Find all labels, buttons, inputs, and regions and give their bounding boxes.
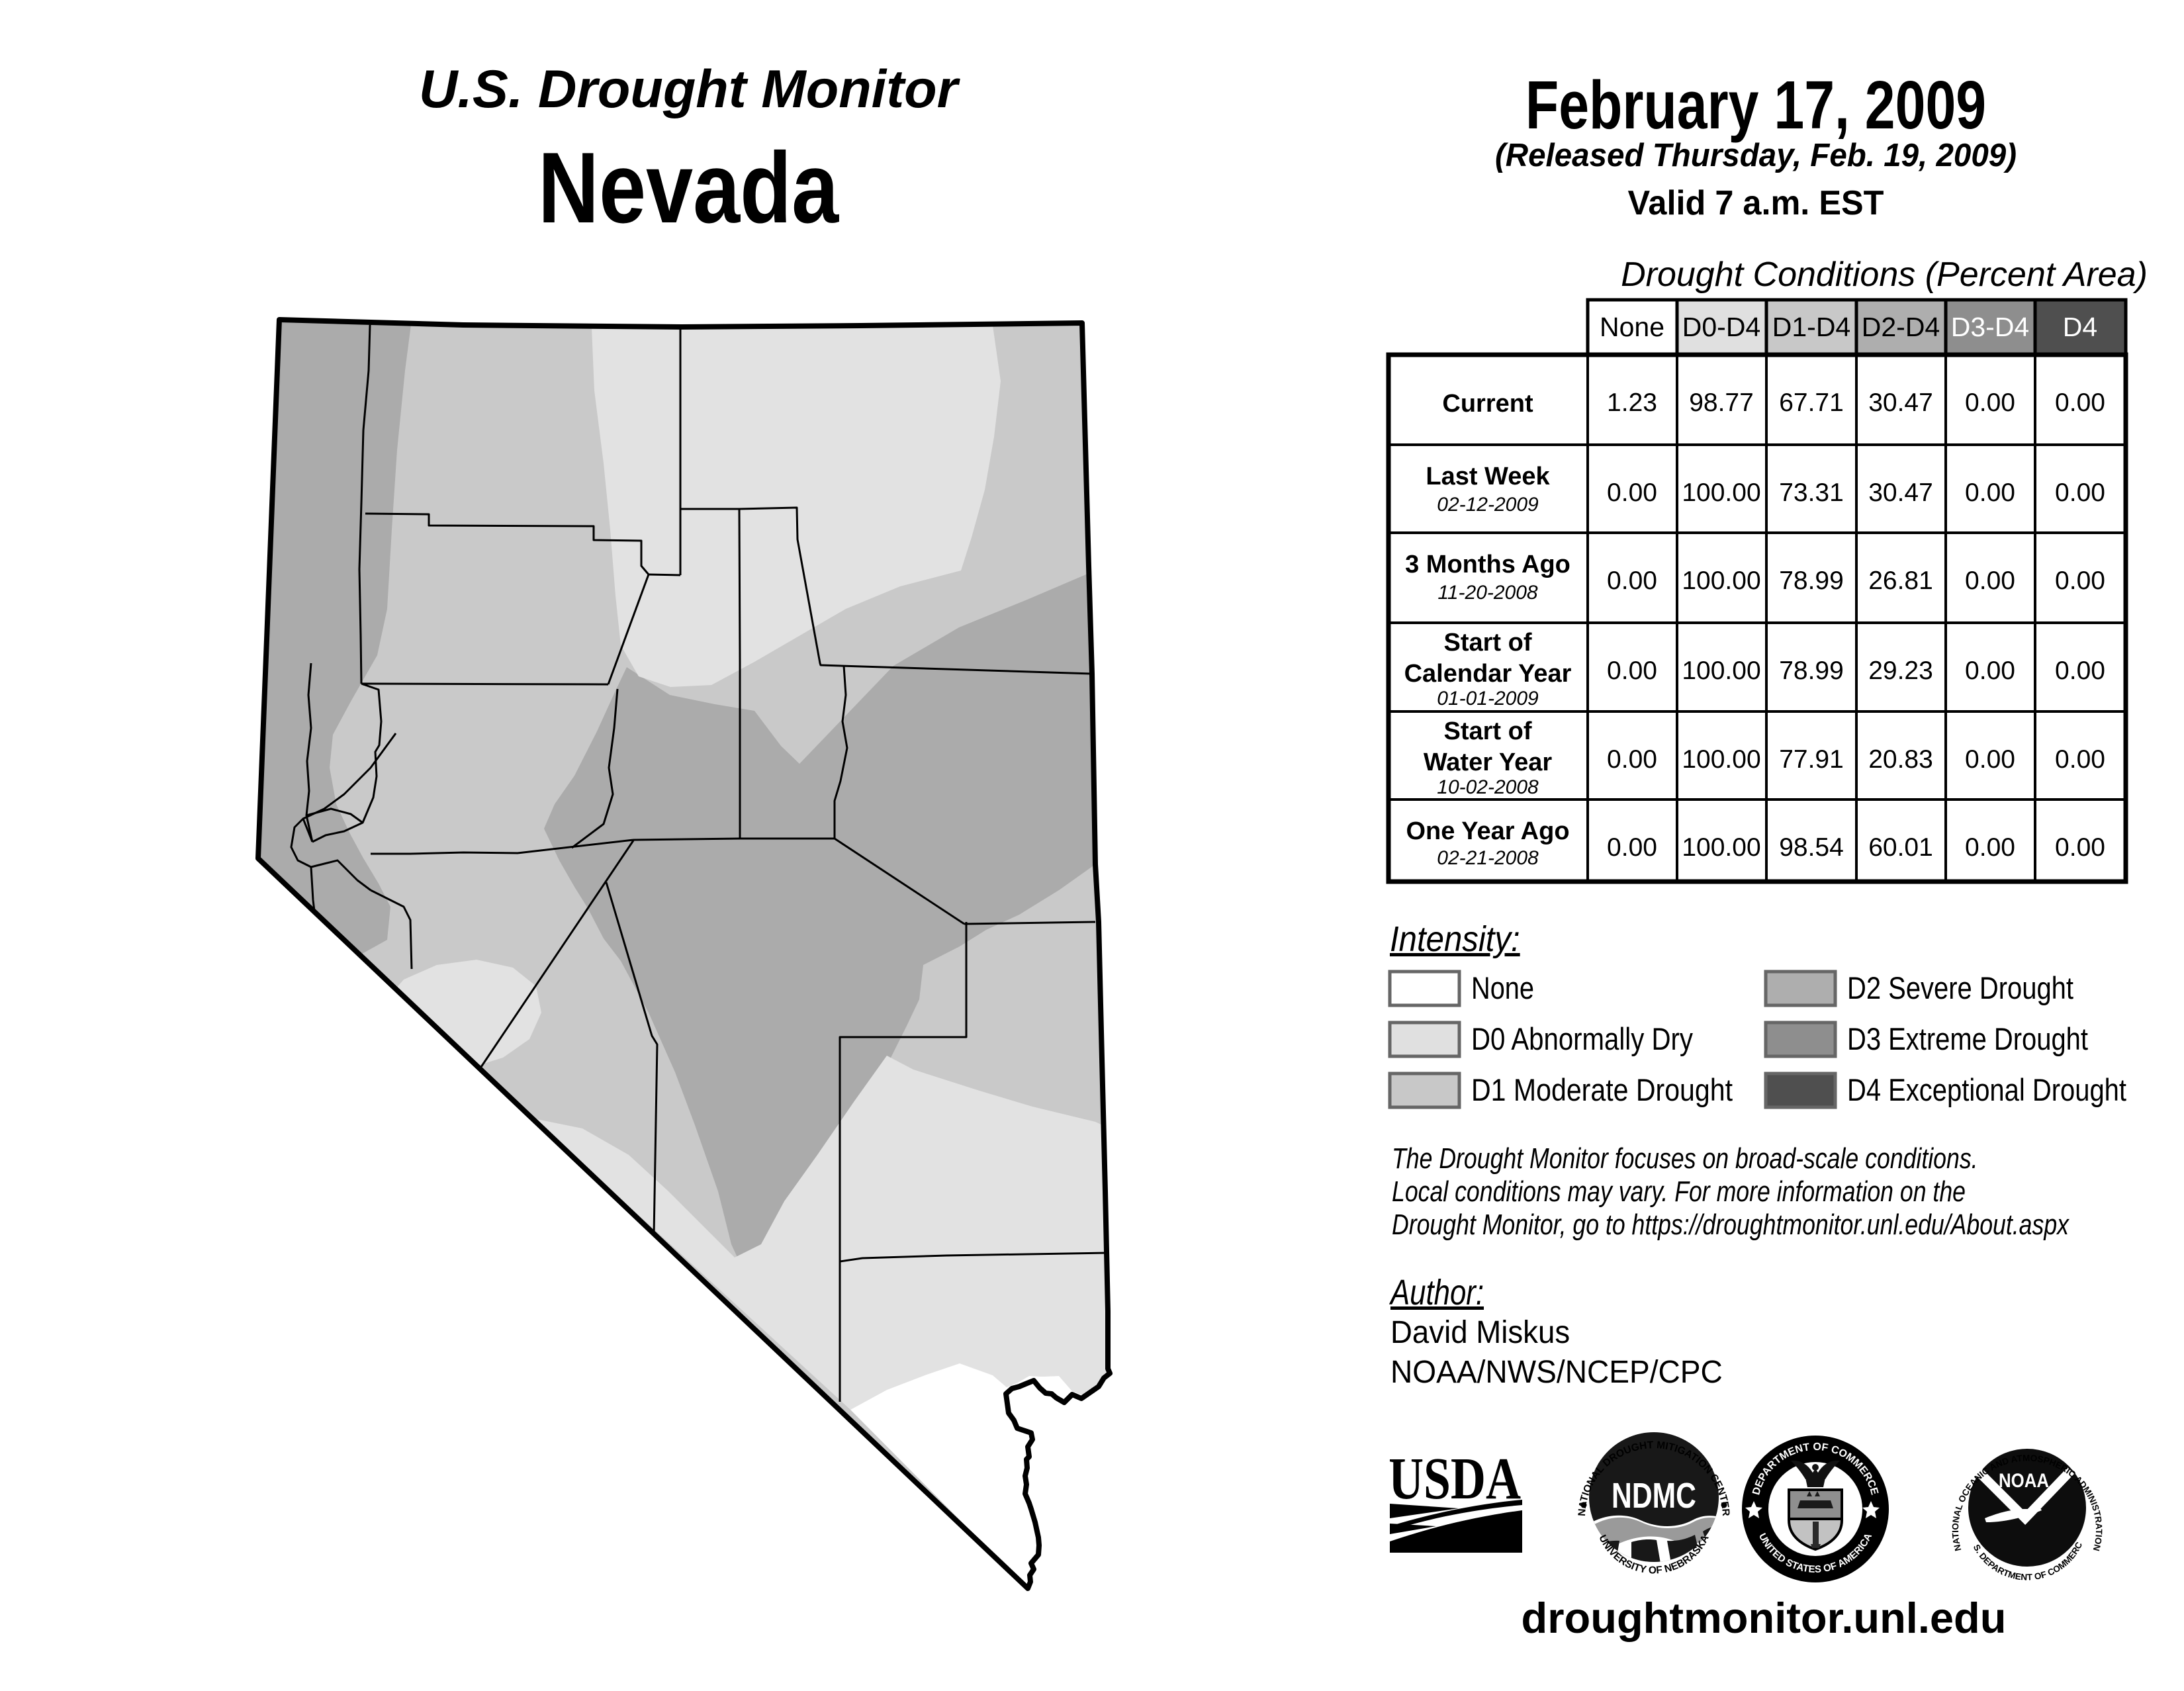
svg-text:NOAA: NOAA: [1999, 1470, 2049, 1492]
svg-text:NDMC: NDMC: [1612, 1476, 1696, 1516]
